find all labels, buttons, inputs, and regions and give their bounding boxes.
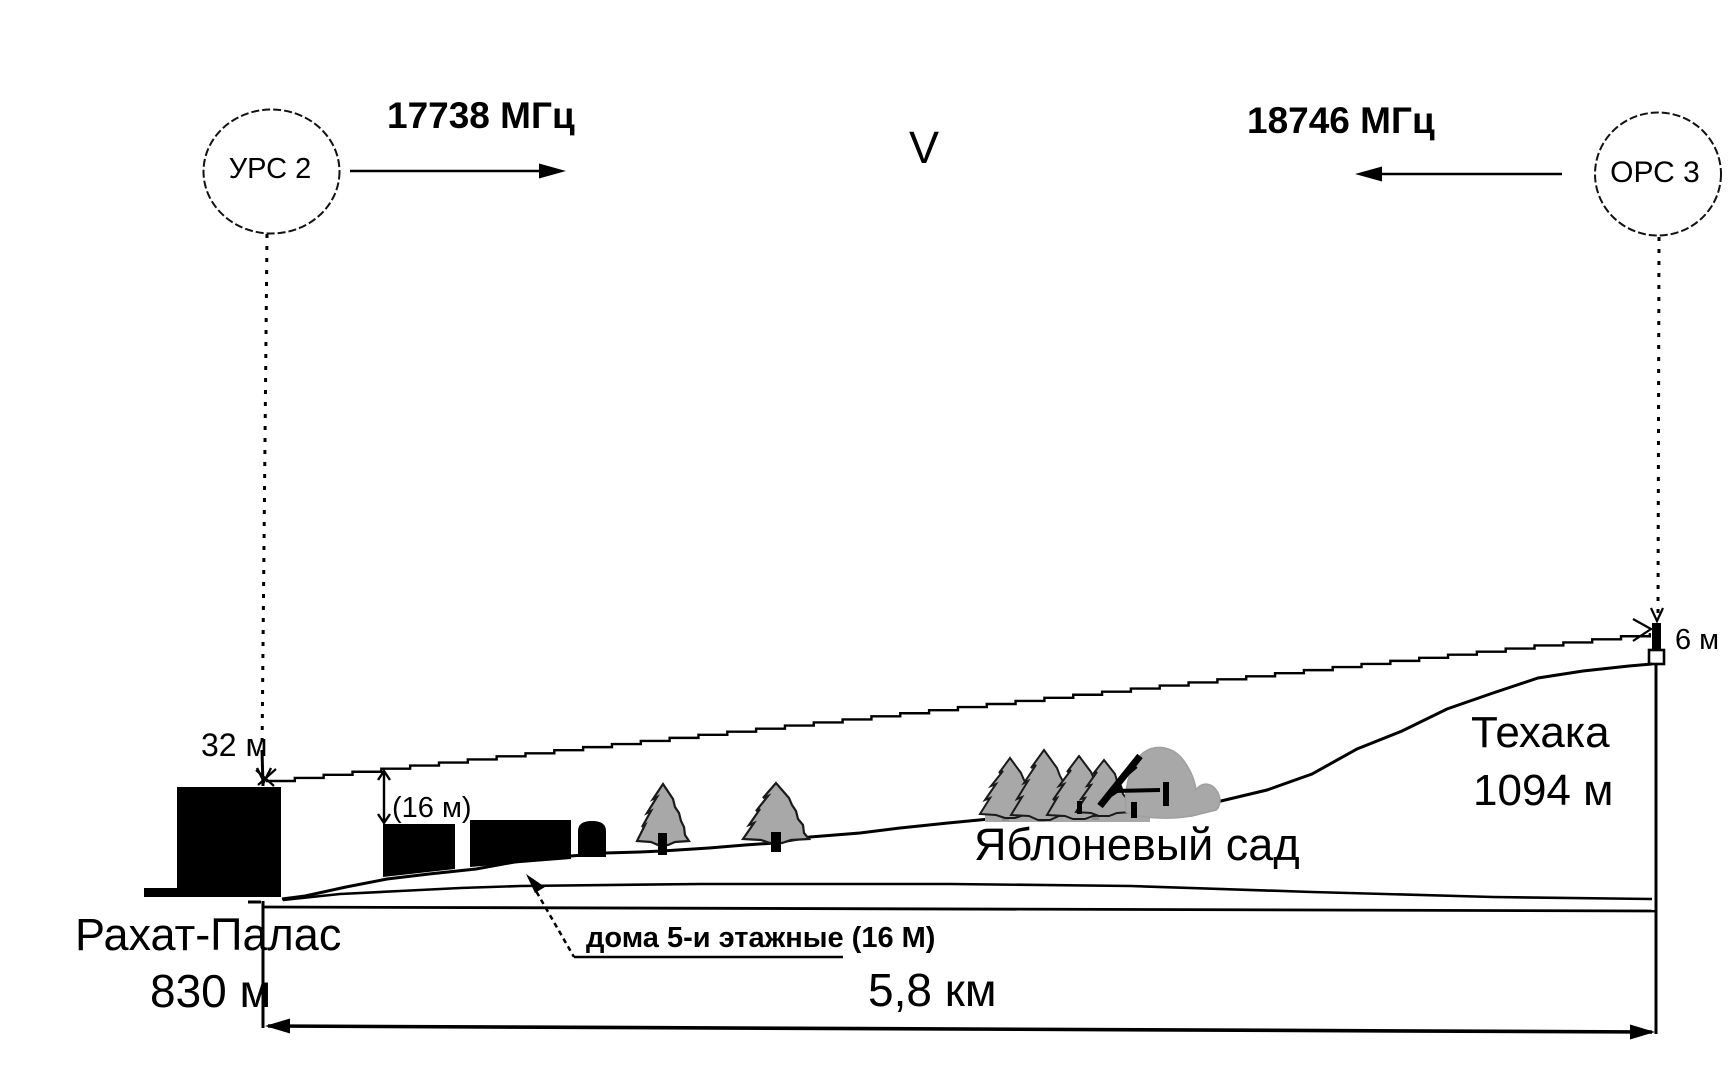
svg-text:18746 МГц: 18746 МГц <box>1247 100 1435 141</box>
svg-text:(16 м): (16 м) <box>392 792 472 824</box>
svg-text:1094 м: 1094 м <box>1473 766 1613 815</box>
svg-text:6 м: 6 м <box>1675 624 1719 656</box>
svg-text:32 м: 32 м <box>201 727 267 763</box>
svg-text:УРС 2: УРС 2 <box>229 153 312 185</box>
svg-text:830 м: 830 м <box>150 965 271 1017</box>
svg-text:V: V <box>909 122 939 173</box>
svg-text:ОРС 3: ОРС 3 <box>1610 156 1700 189</box>
svg-text:Рахат-Палас: Рахат-Палас <box>75 909 341 960</box>
svg-text:Техака: Техака <box>1471 708 1610 757</box>
svg-text:17738 МГц: 17738 МГц <box>387 95 575 136</box>
svg-text:5,8 км: 5,8 км <box>868 964 996 1016</box>
svg-text:Яблоневый сад: Яблоневый сад <box>974 819 1300 870</box>
svg-text:дома 5-и этажные (16 М): дома 5-и этажные (16 М) <box>586 922 935 954</box>
